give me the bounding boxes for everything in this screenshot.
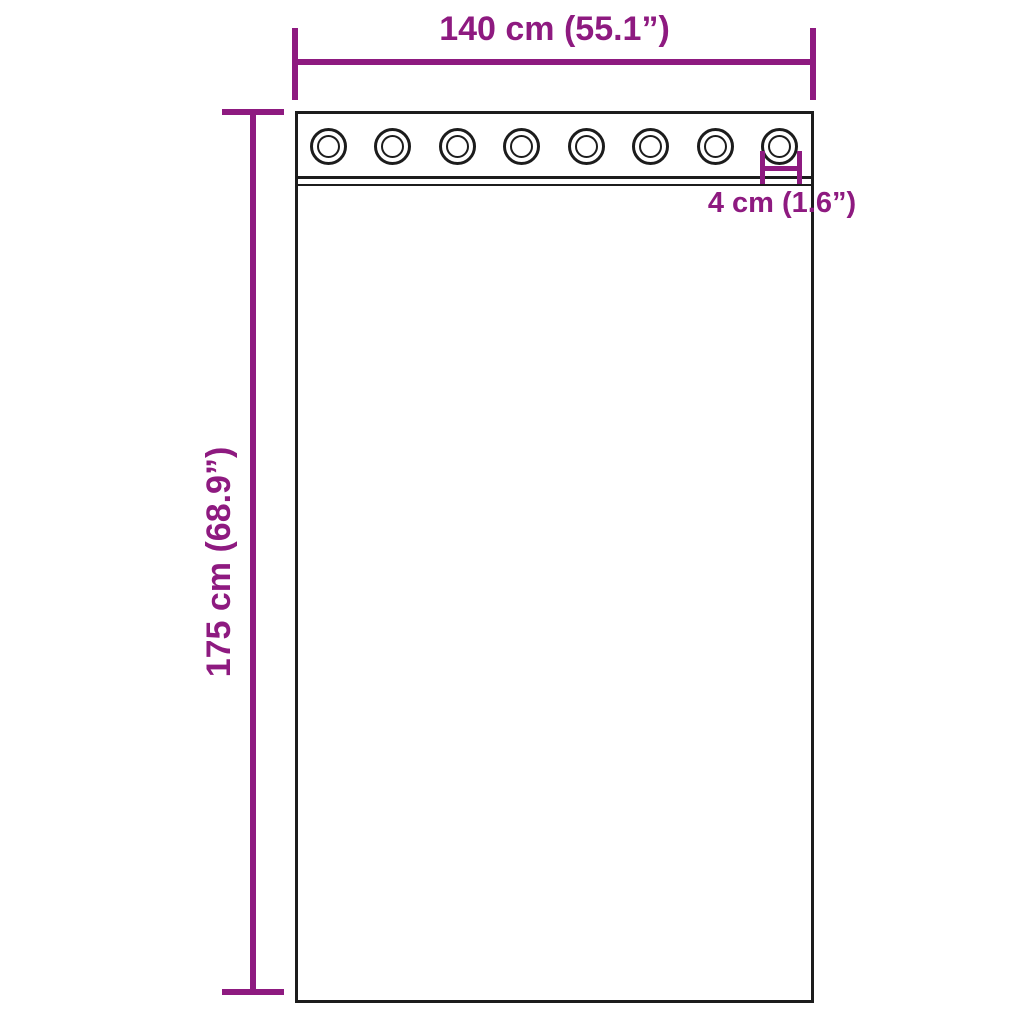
grommet: [632, 128, 669, 165]
width-dimension-line: [295, 59, 814, 65]
grommet: [568, 128, 605, 165]
grommet-inner-ring: [639, 135, 662, 158]
grommet: [439, 128, 476, 165]
grommet: [310, 128, 347, 165]
grommet-inner-ring: [446, 135, 469, 158]
grommet-inner-ring: [381, 135, 404, 158]
grommet-inner-ring: [510, 135, 533, 158]
width-dimension-label: 140 cm (55.1”): [295, 9, 814, 49]
product-dimension-diagram: 140 cm (55.1”) 175 cm (68.9”) 4 cm (1.6”…: [0, 0, 1024, 1024]
curtain-panel: [295, 111, 814, 1003]
grommet-dimension-label: 4 cm (1.6”): [682, 185, 882, 221]
grommet-dimension-bar: [760, 166, 802, 171]
height-dimension-tick-top: [222, 109, 284, 115]
grommet-inner-ring: [575, 135, 598, 158]
grommet: [503, 128, 540, 165]
grommet-inner-ring: [768, 135, 791, 158]
header-seam-line-upper: [298, 176, 811, 179]
height-dimension-line: [250, 112, 256, 992]
grommet: [697, 128, 734, 165]
height-dimension-tick-bottom: [222, 989, 284, 995]
height-dimension-label: 175 cm (68.9”): [197, 312, 241, 812]
grommet-inner-ring: [317, 135, 340, 158]
grommet: [374, 128, 411, 165]
grommet-inner-ring: [704, 135, 727, 158]
